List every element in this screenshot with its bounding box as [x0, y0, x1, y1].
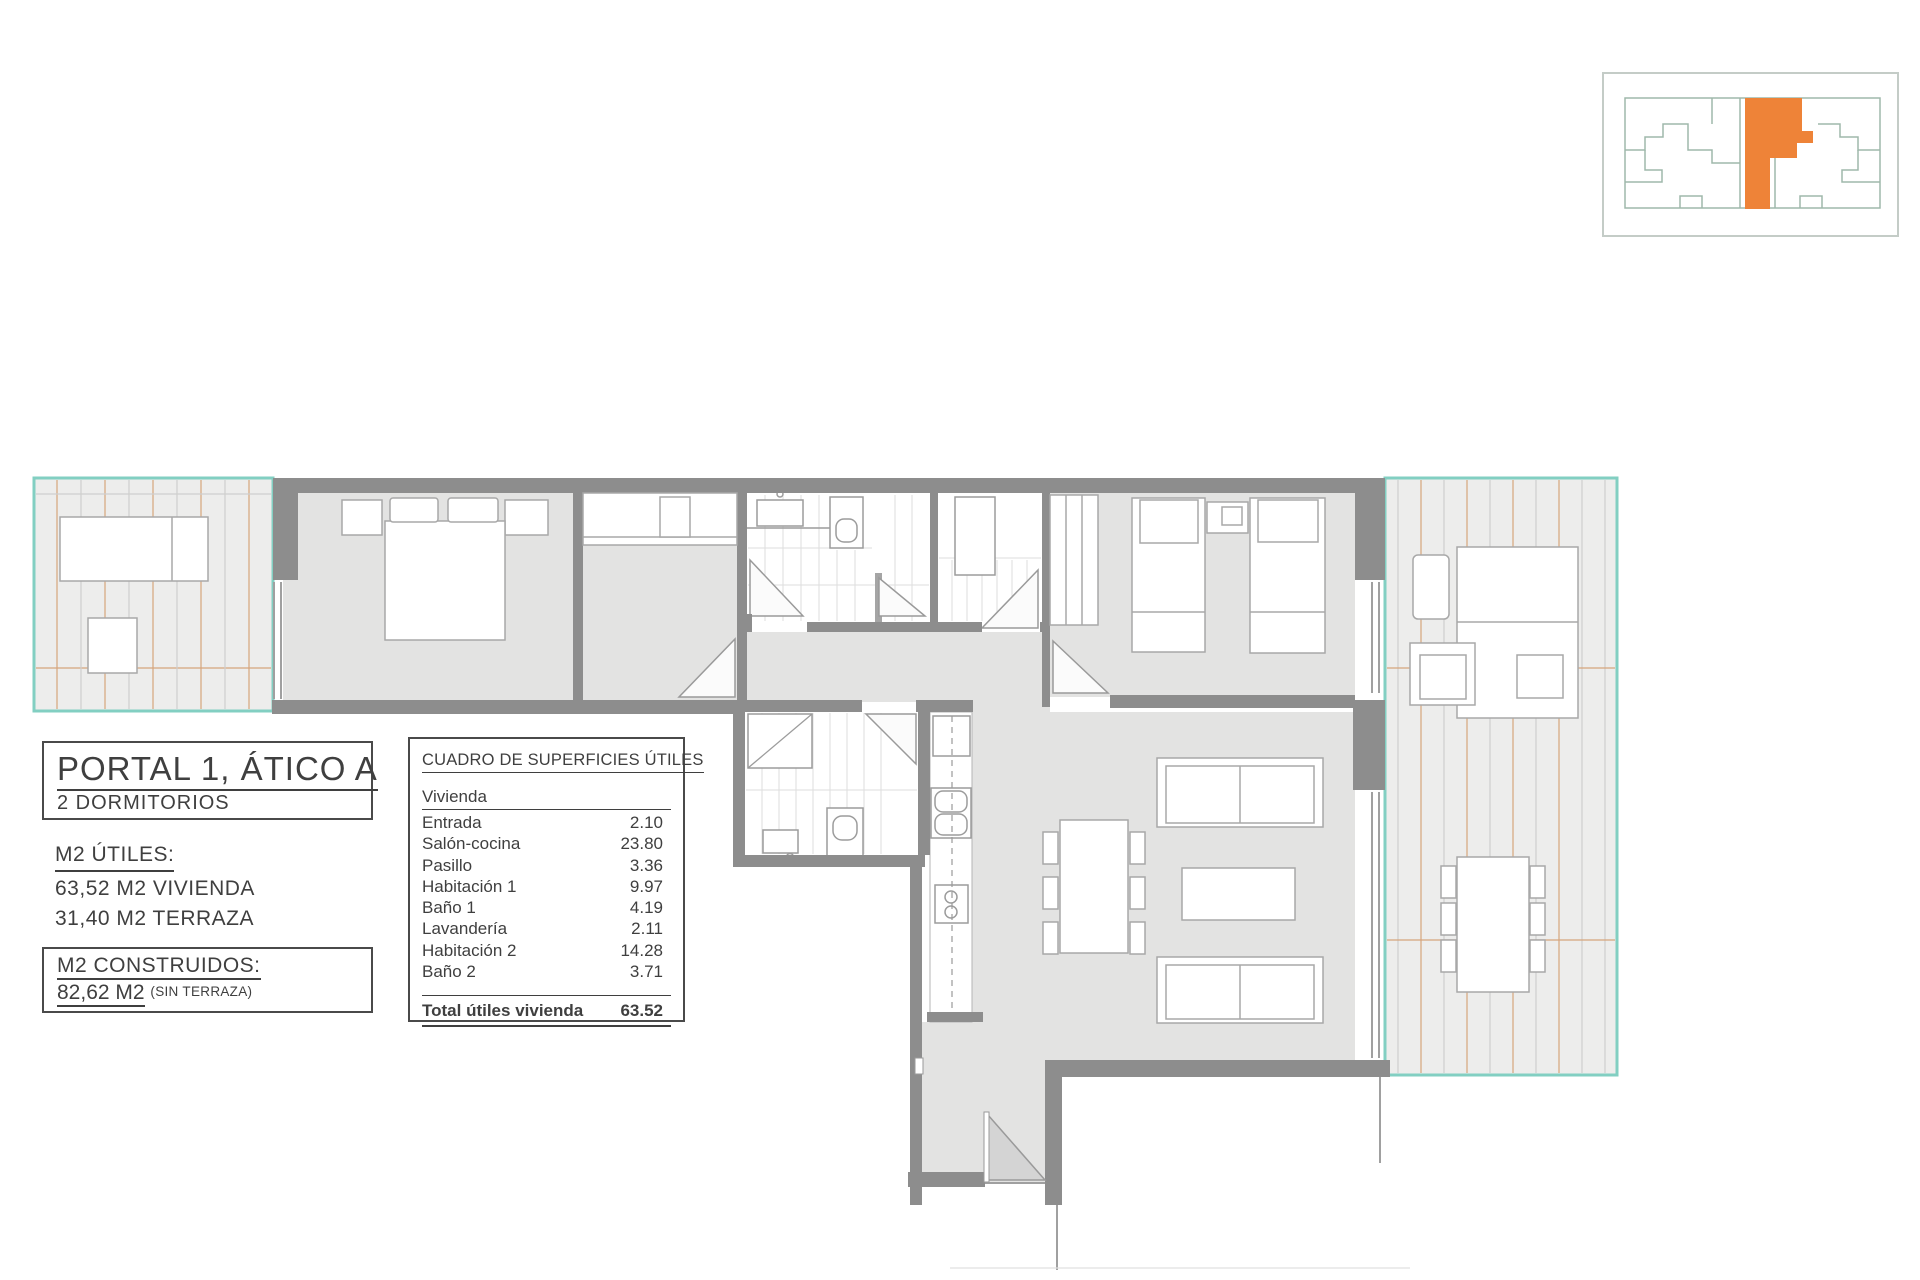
surface-table-title: CUADRO DE SUPERFICIES ÚTILES: [422, 751, 704, 773]
useful-area-dwelling: 63,52 M2 VIVIENDA: [55, 877, 255, 900]
terrace-dining-set: [1441, 857, 1545, 992]
key-plan: [1603, 73, 1898, 236]
bathroom-1: [747, 491, 930, 624]
useful-area-block: M2 ÚTILES: 63,52 M2 VIVIENDA 31,40 M2 TE…: [55, 840, 255, 934]
table-total-label: Total útiles vivienda: [422, 1001, 583, 1021]
table-row: Pasillo 3.36: [422, 855, 671, 876]
useful-area-terrace: 31,40 M2 TERRAZA: [55, 907, 254, 930]
surface-table-group: Vivienda: [422, 787, 671, 810]
table-row: Lavandería 2.11: [422, 918, 671, 939]
left-terrace: [34, 478, 273, 711]
table-row: Habitación 2 14.28: [422, 940, 671, 961]
bathroom-2: [745, 712, 918, 861]
built-area-note: (SIN TERRAZA): [150, 984, 252, 999]
page-subtitle: 2 DORMITORIOS: [57, 792, 371, 815]
floorplan-page: PORTAL 1, ÁTICO A 2 DORMITORIOS M2 ÚTILE…: [0, 0, 1920, 1280]
table-row: Salón-cocina 23.80: [422, 833, 671, 854]
table-row: Baño 1 4.19: [422, 897, 671, 918]
kitchen-counter: [930, 712, 972, 1022]
table-total-row: Total útiles vivienda 63.52: [422, 995, 671, 1027]
right-terrace: [1385, 478, 1617, 1075]
floor-plan-drawing: [0, 0, 1920, 1280]
built-area-value: 82,62 M2: [57, 981, 145, 1007]
title-block: PORTAL 1, ÁTICO A 2 DORMITORIOS: [42, 741, 373, 820]
table-row: Entrada 2.10: [422, 812, 671, 833]
page-title: PORTAL 1, ÁTICO A: [57, 750, 378, 791]
wardrobe: [583, 493, 737, 545]
table-row: Baño 2 3.71: [422, 961, 671, 982]
useful-area-heading: M2 ÚTILES:: [55, 840, 174, 872]
laundry-room: [938, 493, 1042, 628]
built-area-block: M2 CONSTRUIDOS: 82,62 M2 (SIN TERRAZA): [42, 947, 373, 1013]
table-row: Habitación 1 9.97: [422, 876, 671, 897]
table-total-value: 63.52: [620, 1001, 663, 1021]
surface-table: CUADRO DE SUPERFICIES ÚTILES Vivienda En…: [408, 737, 685, 1022]
built-area-heading: M2 CONSTRUIDOS:: [57, 954, 261, 980]
